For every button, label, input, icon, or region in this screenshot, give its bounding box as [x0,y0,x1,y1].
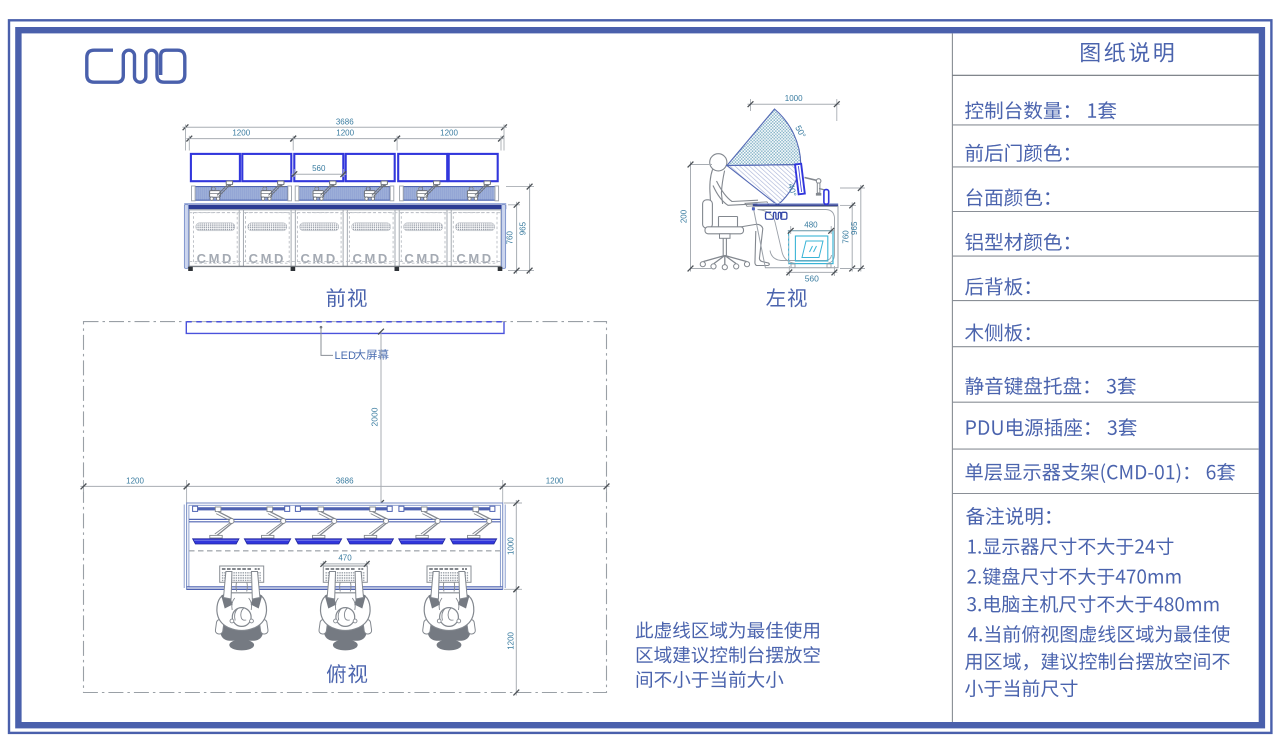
svg-text:1200: 1200 [506,631,515,649]
svg-text:560: 560 [312,164,326,173]
svg-text:200: 200 [680,209,689,223]
svg-text:965: 965 [850,221,859,235]
svg-text:1200: 1200 [440,129,458,138]
svg-text:CMD: CMD [300,251,337,266]
svg-text:480: 480 [804,221,818,230]
svg-text:1200: 1200 [126,476,144,485]
svg-text:LED: LED [335,350,356,362]
svg-text:470: 470 [338,554,352,563]
svg-text:1000: 1000 [506,537,515,555]
svg-text:1200: 1200 [336,129,354,138]
svg-text:965: 965 [519,221,528,235]
svg-text:CMD: CMD [197,251,234,266]
svg-text:760: 760 [506,230,515,244]
svg-text:1200: 1200 [546,476,564,485]
svg-text:CMD: CMD [456,251,493,266]
svg-text:2000: 2000 [369,407,379,426]
svg-text:1000: 1000 [785,94,803,103]
svg-text:CMD: CMD [249,251,286,266]
svg-text:3686: 3686 [336,476,354,485]
svg-text:CMD: CMD [352,251,389,266]
svg-text:560: 560 [805,274,819,284]
svg-text:CMD: CMD [404,251,441,266]
svg-text:1200: 1200 [232,129,250,138]
svg-text:3686: 3686 [336,117,354,126]
